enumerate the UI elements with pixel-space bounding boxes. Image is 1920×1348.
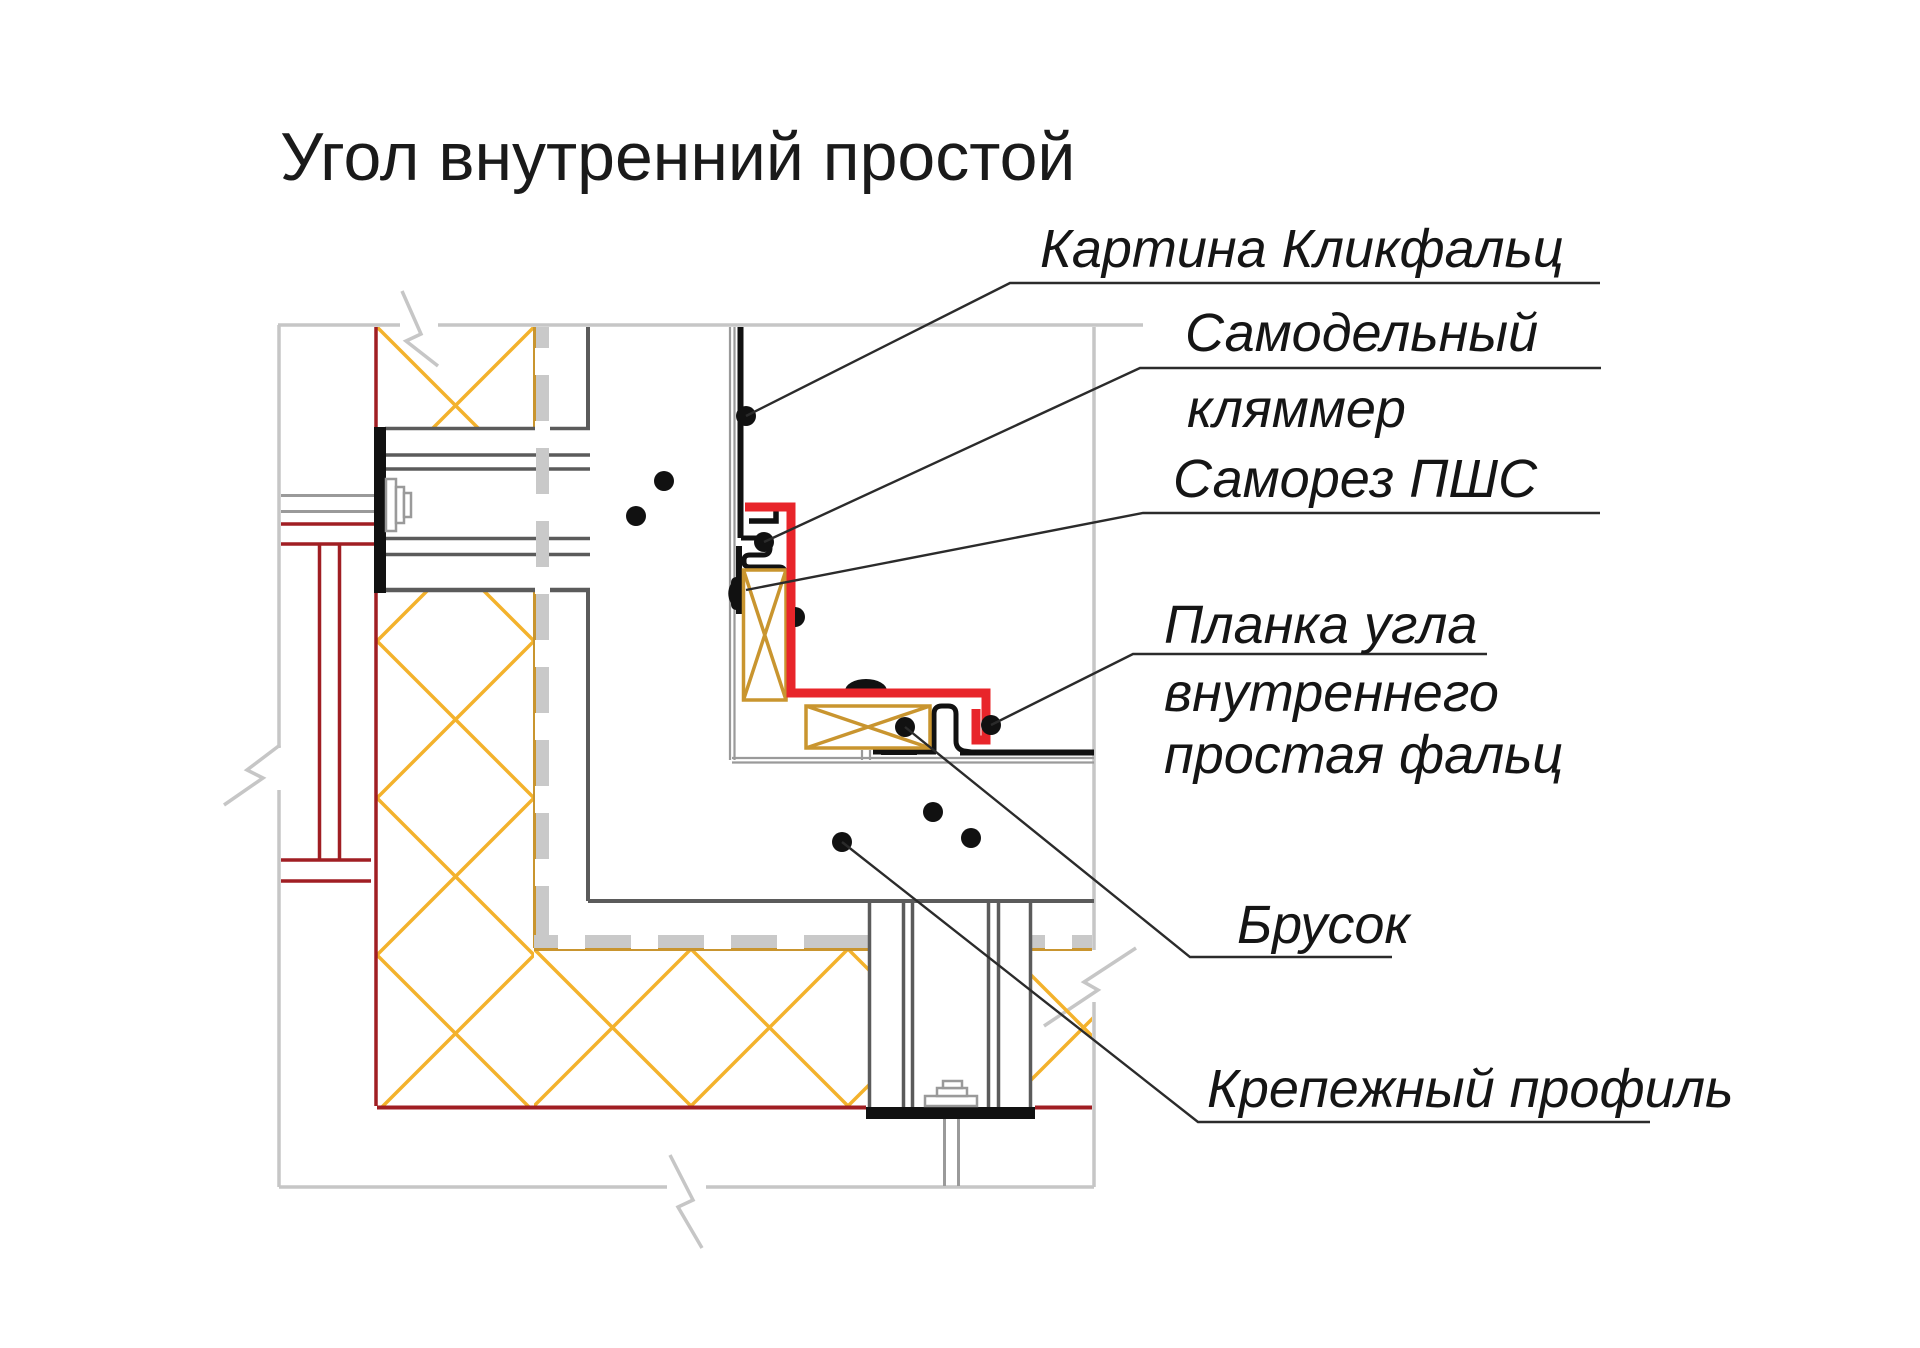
- break-left: [224, 745, 280, 805]
- reference-dots: [626, 471, 981, 848]
- seam-clip-horizontal: [934, 706, 975, 753]
- dark-red-frame: [281, 524, 374, 881]
- label-clip-line1: Самодельный: [1185, 306, 1538, 360]
- screw-head-on-red-leg: [795, 607, 805, 627]
- bracket-foot-black: [866, 1107, 1035, 1119]
- drawing-title: Угол внутренний простой: [280, 118, 1075, 196]
- label-strip-line3: простая фальц: [1164, 728, 1563, 782]
- panel-hem-top: [749, 510, 776, 521]
- label-profile: Крепежный профиль: [1207, 1062, 1733, 1116]
- bracket-stem-left: [281, 496, 376, 512]
- label-strip-line1: Планка угла: [1164, 598, 1477, 652]
- leader-screw: [746, 513, 1600, 590]
- break-bottom: [670, 1155, 702, 1248]
- wall-face-lines: [588, 327, 1094, 901]
- membrane-left: [535, 327, 550, 948]
- drawing-canvas: Угол внутренний простой Картина Кликфаль…: [0, 0, 1920, 1348]
- label-screw: Саморез ПШС: [1173, 452, 1537, 506]
- label-strip-line2: внутреннего: [1164, 666, 1499, 720]
- label-clip-line2: кляммер: [1187, 382, 1406, 436]
- bracket-cap-black: [374, 427, 386, 593]
- bracket-assembly-bottom: [866, 903, 1035, 1186]
- label-panel: Картина Кликфальц: [1040, 222, 1564, 276]
- label-block: Брусок: [1237, 898, 1410, 952]
- bracket-stem-bottom: [945, 1119, 959, 1186]
- detail-drawing: [0, 0, 1920, 1348]
